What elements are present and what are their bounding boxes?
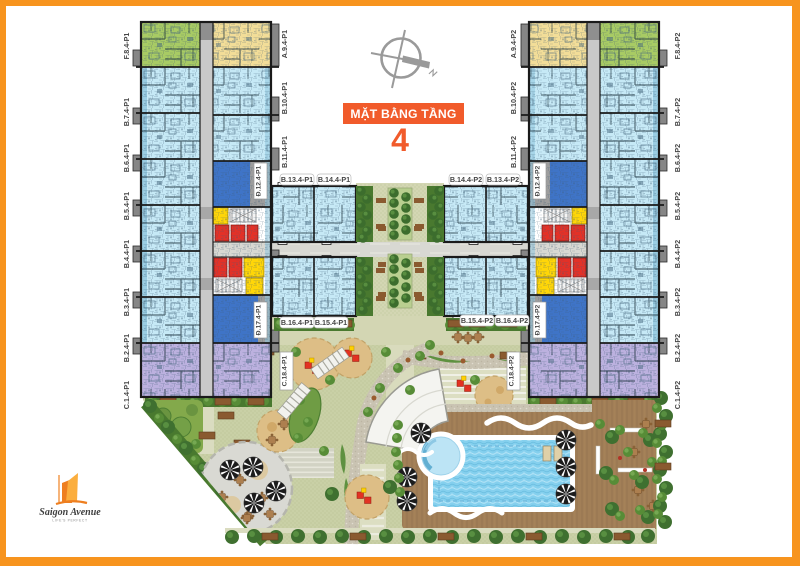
svg-text:B.11.4-P2: B.11.4-P2: [509, 136, 518, 168]
svg-text:B.6.4-P1: B.6.4-P1: [122, 144, 131, 172]
svg-text:F.8.4-P2: F.8.4-P2: [673, 33, 682, 60]
svg-text:B.4.4-P1: B.4.4-P1: [122, 240, 131, 268]
svg-text:C.18.4-P1: C.18.4-P1: [282, 355, 289, 386]
svg-text:4: 4: [391, 122, 409, 158]
svg-text:A.9.4-P2: A.9.4-P2: [509, 30, 518, 58]
svg-text:B.7.4-P2: B.7.4-P2: [673, 98, 682, 126]
svg-text:B.3.4-P1: B.3.4-P1: [122, 288, 131, 316]
svg-text:B.13.4-P2: B.13.4-P2: [487, 175, 519, 184]
svg-text:B.2.4-P2: B.2.4-P2: [673, 334, 682, 362]
svg-text:B.5.4-P2: B.5.4-P2: [673, 192, 682, 220]
svg-text:B.2.4-P1: B.2.4-P1: [122, 334, 131, 362]
svg-text:B.5.4-P1: B.5.4-P1: [122, 192, 131, 220]
svg-text:B.4.4-P2: B.4.4-P2: [673, 240, 682, 268]
svg-text:Đ.12.4-P1: Đ.12.4-P1: [256, 165, 263, 196]
svg-text:Saigon Avenue: Saigon Avenue: [39, 507, 101, 518]
svg-text:B.16.4-P2: B.16.4-P2: [496, 316, 528, 325]
svg-text:C.18.4-P2: C.18.4-P2: [509, 355, 516, 386]
svg-text:B.7.4-P1: B.7.4-P1: [122, 98, 131, 126]
svg-text:Đ.17.4-P1: Đ.17.4-P1: [256, 304, 263, 335]
svg-text:B.6.4-P2: B.6.4-P2: [673, 144, 682, 172]
svg-text:B.14.4-P2: B.14.4-P2: [450, 175, 482, 184]
svg-text:B.14.4-P1: B.14.4-P1: [318, 175, 350, 184]
svg-text:B.10.4-P1: B.10.4-P1: [280, 82, 289, 114]
svg-text:B.11.4-P1: B.11.4-P1: [280, 136, 289, 168]
svg-text:F.8.4-P1: F.8.4-P1: [122, 33, 131, 60]
svg-text:A.9.4-P1: A.9.4-P1: [280, 30, 289, 58]
svg-text:B.15.4-P2: B.15.4-P2: [461, 316, 493, 325]
svg-text:B.16.4-P1: B.16.4-P1: [281, 318, 313, 327]
svg-text:B.10.4-P2: B.10.4-P2: [509, 82, 518, 114]
svg-text:Đ.12.4-P2: Đ.12.4-P2: [535, 165, 542, 196]
svg-text:B.15.4-P1: B.15.4-P1: [315, 318, 347, 327]
svg-text:B.3.4-P2: B.3.4-P2: [673, 288, 682, 316]
svg-text:Đ.17.4-P2: Đ.17.4-P2: [535, 304, 542, 335]
svg-text:MẶT BẰNG TẦNG: MẶT BẰNG TẦNG: [350, 106, 456, 121]
svg-text:C.1.4-P1: C.1.4-P1: [122, 381, 131, 409]
svg-text:LIFE'S PERFECT: LIFE'S PERFECT: [52, 519, 87, 523]
svg-text:C.1.4-P2: C.1.4-P2: [673, 381, 682, 409]
svg-text:B.13.4-P1: B.13.4-P1: [281, 175, 313, 184]
